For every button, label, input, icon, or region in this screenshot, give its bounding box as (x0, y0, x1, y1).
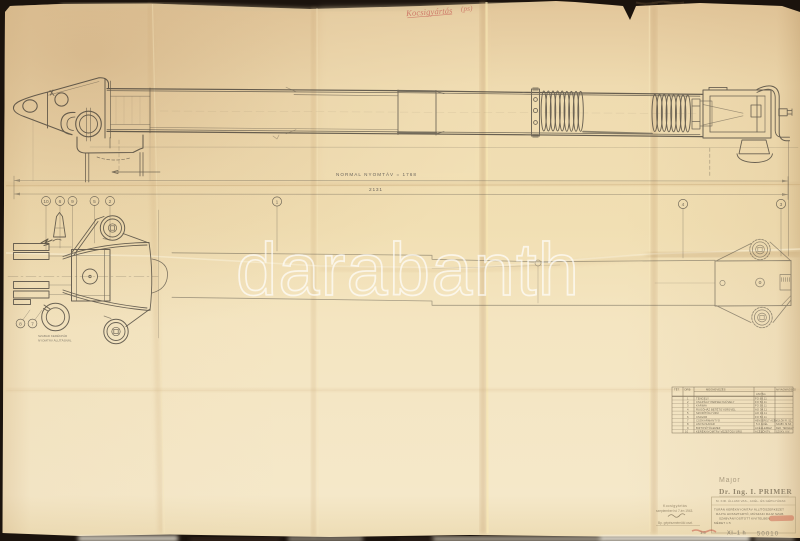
svg-text:RAJTA HOSSZTARTÓ, MŰSZAKI RAJZ: RAJTA HOSSZTARTÓ, MŰSZAKI RAJZ SZAB. (716, 511, 784, 516)
svg-text:darabanth: darabanth (236, 228, 580, 311)
svg-text:(ps): (ps) (461, 3, 474, 13)
svg-text:9: 9 (71, 199, 74, 205)
svg-text:6: 6 (59, 199, 62, 205)
svg-text:4: 4 (682, 202, 685, 208)
svg-text:FO 60.11: FO 60.11 (755, 396, 767, 400)
svg-text:Bp. gépészmérnöki oszt.: Bp. gépészmérnöki oszt. (658, 521, 693, 525)
svg-text:FO 50.11: FO 50.11 (755, 404, 767, 408)
svg-text:NORMAL NYOMTÁV = 1768: NORMAL NYOMTÁV = 1768 (336, 171, 417, 177)
svg-text:3: 3 (780, 202, 783, 208)
svg-text:AO 34.11: AO 34.11 (755, 407, 767, 411)
svg-text:1: 1 (276, 200, 279, 206)
svg-text:SZABAD KERÉKPÁR: SZABAD KERÉKPÁR (38, 333, 68, 338)
svg-text:DRB: DRB (685, 388, 691, 392)
svg-text:FO 50.11: FO 50.11 (755, 415, 767, 419)
svg-text:50010: 50010 (757, 532, 779, 538)
svg-text:SZABVÁNYOSÍTOTT KIVITELBEN: SZABVÁNYOSÍTOTT KIVITELBEN (719, 517, 770, 521)
svg-text:FO 50.11: FO 50.11 (755, 400, 767, 404)
svg-text:10: 10 (43, 199, 49, 205)
svg-text:10: 10 (685, 430, 689, 434)
svg-text:KER. TENGELY: KER. TENGELY (776, 428, 794, 430)
svg-text:Dr. Ing. I. PRIMER: Dr. Ing. I. PRIMER (719, 487, 792, 496)
svg-text:Kocsigyártás: Kocsigyártás (663, 504, 687, 508)
svg-text:KARIMA: KARIMA (696, 404, 707, 408)
svg-text:SZABV. M.SZ.: SZABV. M.SZ. (776, 423, 792, 426)
svg-text:szeptember hó 7-én 1943.: szeptember hó 7-én 1943. (656, 509, 693, 513)
svg-text:TURÁN KERÉKNYOMTÁV ÁLLÍTÓSZERK: TURÁN KERÉKNYOMTÁV ÁLLÍTÓSZERKEZET (714, 507, 784, 512)
svg-text:NYOMTÁV ÁLLÍTÁSNÁL: NYOMTÁV ÁLLÍTÁSNÁL (38, 339, 72, 343)
svg-text:2131: 2131 (369, 187, 383, 193)
svg-text:TENGELY: TENGELY (696, 396, 709, 400)
svg-text:2: 2 (109, 199, 112, 205)
svg-text:SZOKV. KIV.: SZOKV. KIV. (776, 432, 790, 434)
svg-text:ANYAG: ANYAG (756, 392, 766, 396)
svg-text:1:5: 1:5 (700, 530, 706, 535)
svg-text:7: 7 (31, 322, 34, 328)
svg-text:MÉRET 1:5: MÉRET 1:5 (714, 520, 731, 525)
svg-text:8: 8 (19, 322, 22, 328)
svg-text:5: 5 (93, 199, 96, 205)
svg-text:CSAPÁGY PERSELYHÜVELY: CSAPÁGY PERSELYHÜVELY (696, 400, 735, 404)
svg-text:ANYAGMINŐSÉG: ANYAGMINŐSÉG (776, 389, 796, 392)
svg-text:AO 34.11: AO 34.11 (755, 411, 767, 415)
svg-text:KÜLÖN R. SZ.: KÜLÖN R. SZ. (776, 420, 793, 423)
svg-text:CSAVAR: CSAVAR (696, 415, 707, 419)
svg-text:Major: Major (719, 477, 741, 484)
svg-text:HENGERELT ACÉL: HENGERELT ACÉL (755, 420, 777, 423)
svg-text:M. KIR. ÁLLAMI VAS-, ACÉL- ÉS: M. KIR. ÁLLAMI VAS-, ACÉL- ÉS GÉPGYÁRAK (716, 498, 786, 503)
svg-text:ANYACSAVAR: ANYACSAVAR (696, 422, 715, 426)
